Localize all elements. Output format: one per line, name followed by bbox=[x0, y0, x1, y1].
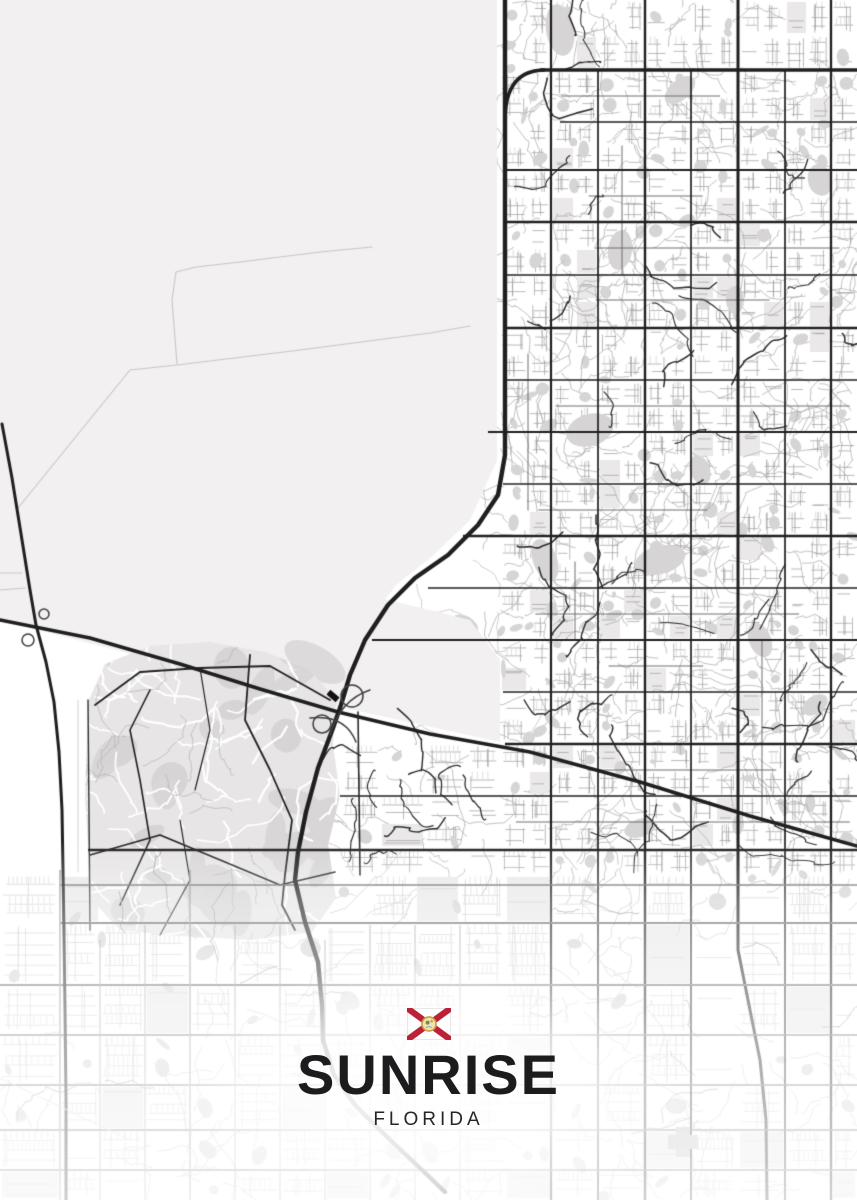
city-map-poster: SUNRISE FLORIDA bbox=[0, 0, 857, 1200]
flag-seal-sun bbox=[430, 1020, 433, 1023]
state-subtitle: FLORIDA bbox=[0, 1110, 857, 1129]
title-block: SUNRISE FLORIDA bbox=[0, 1008, 857, 1129]
florida-flag-icon bbox=[407, 1008, 451, 1040]
city-title: SUNRISE bbox=[0, 1047, 857, 1103]
flag-seal-palm bbox=[425, 1021, 429, 1025]
